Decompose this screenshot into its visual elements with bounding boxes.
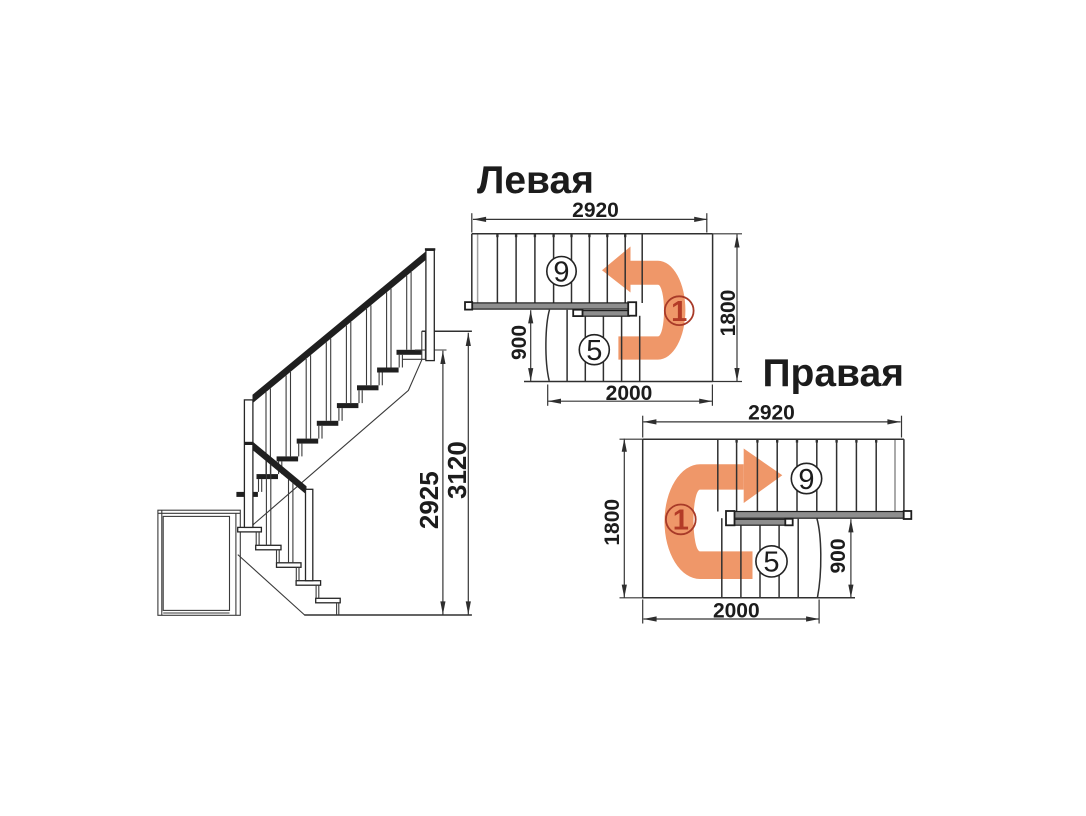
- svg-text:900: 900: [508, 325, 531, 360]
- svg-text:1800: 1800: [717, 290, 740, 337]
- svg-text:1800: 1800: [601, 499, 624, 546]
- svg-text:1: 1: [671, 296, 687, 328]
- svg-text:2920: 2920: [748, 402, 795, 425]
- svg-text:2000: 2000: [606, 382, 653, 405]
- svg-text:9: 9: [553, 257, 569, 289]
- svg-text:9: 9: [798, 464, 814, 496]
- svg-text:1: 1: [673, 505, 689, 537]
- svg-text:Правая: Правая: [763, 352, 904, 395]
- svg-text:5: 5: [586, 335, 602, 367]
- svg-text:2925: 2925: [414, 471, 444, 529]
- svg-text:Левая: Левая: [477, 159, 594, 202]
- svg-text:900: 900: [827, 538, 850, 573]
- svg-text:2920: 2920: [572, 199, 619, 222]
- svg-text:3120: 3120: [442, 441, 472, 499]
- svg-text:2000: 2000: [713, 599, 760, 622]
- svg-text:5: 5: [763, 547, 779, 579]
